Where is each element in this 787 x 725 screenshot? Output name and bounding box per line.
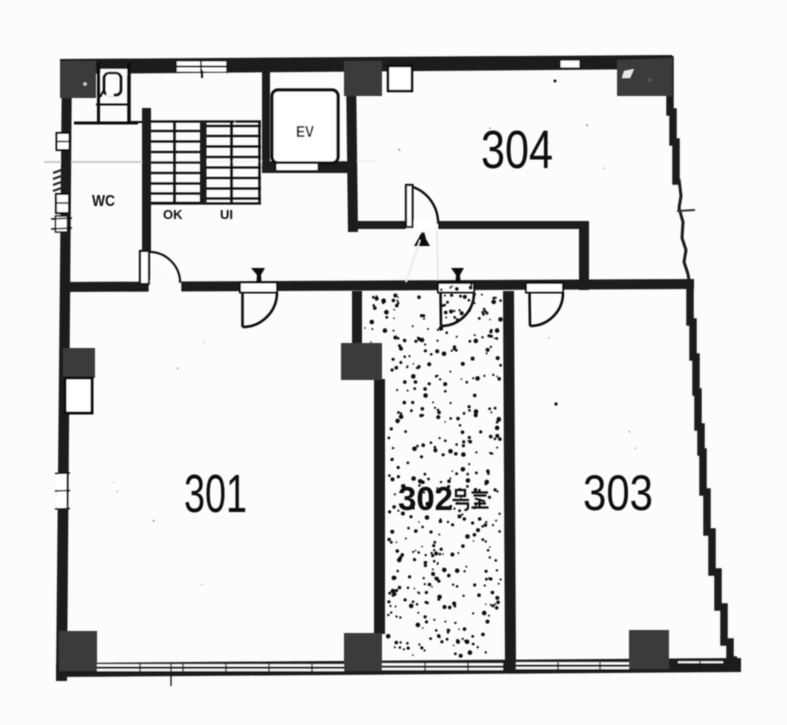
svg-text:OK: OK: [163, 207, 183, 222]
svg-text:EV: EV: [296, 124, 315, 141]
svg-text:301: 301: [184, 464, 247, 524]
svg-text:304: 304: [481, 120, 553, 180]
svg-text:WC: WC: [92, 193, 115, 210]
svg-text:303: 303: [583, 465, 653, 521]
svg-text:302: 302: [398, 480, 453, 517]
svg-text:UI: UI: [220, 207, 233, 222]
